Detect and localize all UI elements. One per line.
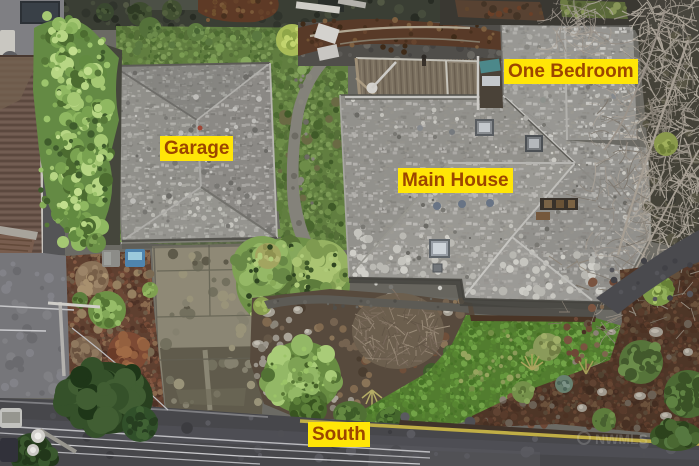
svg-text:NWMLS: NWMLS <box>595 431 648 447</box>
